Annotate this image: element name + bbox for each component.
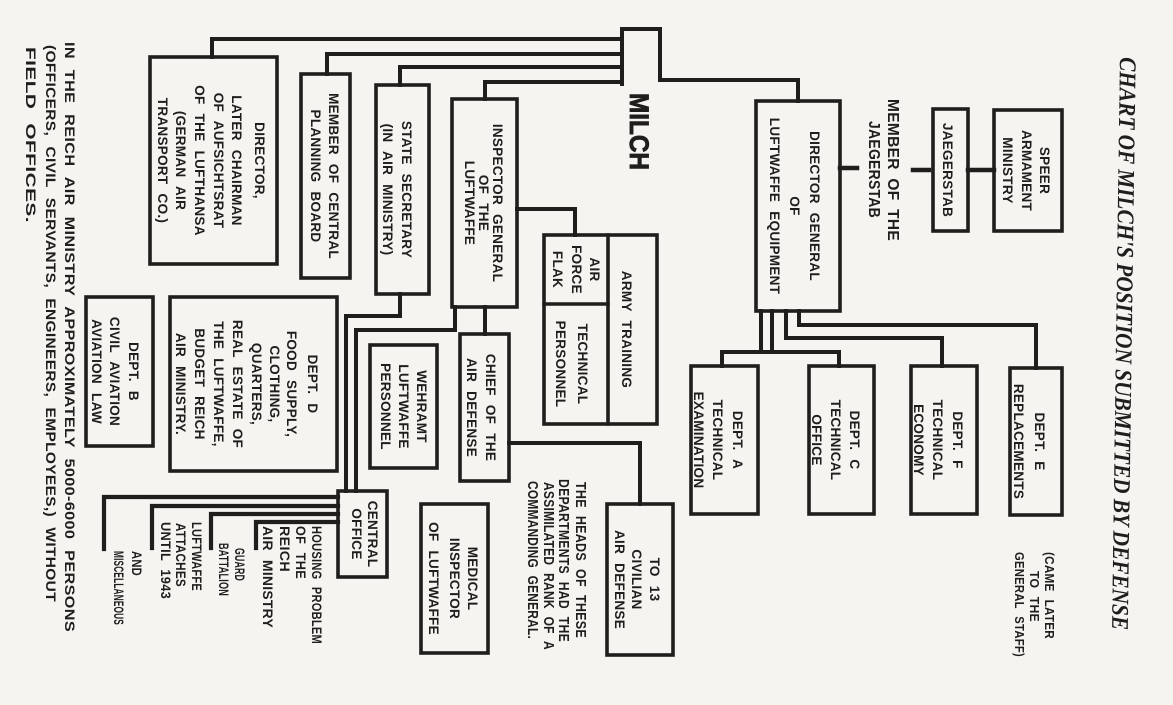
svg-text:PERSONNEL: PERSONNEL [553,321,568,408]
svg-text:MEDICAL: MEDICAL [465,547,480,611]
svg-text:MILCH: MILCH [624,93,654,170]
svg-text:INSPECTOR GENERAL: INSPECTOR GENERAL [490,124,505,282]
svg-text:PERSONNEL: PERSONNEL [378,363,393,450]
svg-text:MISCELLANEOUS: MISCELLANEOUS [111,551,126,625]
svg-text:JAEGERSTAB: JAEGERSTAB [940,123,955,217]
svg-text:DEPARTMENTS HAD THE: DEPARTMENTS HAD THE [555,479,571,642]
svg-text:OFFICE: OFFICE [349,508,364,559]
svg-text:ATTACHES: ATTACHES [173,523,188,587]
svg-text:ECONOMY: ECONOMY [911,404,926,476]
svg-text:(GERMAN AIR: (GERMAN AIR [173,111,188,210]
svg-text:ARMAMENT: ARMAMENT [1019,130,1034,212]
svg-text:OF THE: OF THE [476,175,491,231]
svg-text:INSPECTOR: INSPECTOR [447,538,462,619]
svg-text:BATTALION: BATTALION [216,543,231,596]
svg-text:CIVIL AVIATION: CIVIL AVIATION [107,317,122,426]
svg-text:DEPT. C: DEPT. C [847,411,862,470]
svg-text:(CAME LATER: (CAME LATER [1042,552,1057,639]
svg-text:CENTRAL: CENTRAL [365,501,380,568]
svg-text:OF THE: OF THE [293,526,308,579]
svg-text:GENERAL STAFF): GENERAL STAFF) [1012,552,1027,657]
svg-text:TRANSPORT CO.): TRANSPORT CO.) [155,98,170,223]
svg-text:DEPT. F: DEPT. F [950,411,965,468]
svg-text:QUARTERS,: QUARTERS, [249,343,264,425]
svg-text:OFFICE: OFFICE [809,414,824,465]
svg-text:AIR MINISTRY: AIR MINISTRY [260,526,275,628]
svg-text:REICH: REICH [277,526,292,572]
svg-text:STATE SECRETARY: STATE SECRETARY [399,121,414,258]
svg-text:EXAMINATION: EXAMINATION [691,392,706,489]
svg-text:COMMANDING GENERAL.: COMMANDING GENERAL. [524,481,540,639]
svg-text:BUDGET REICH: BUDGET REICH [192,328,207,439]
svg-text:(OFFICERS, CIVIL SERVANTS, ENG: (OFFICERS, CIVIL SERVANTS, ENGINEERS, EM… [43,45,58,603]
svg-text:REAL ESTATE OF: REAL ESTATE OF [230,320,245,448]
svg-text:DEPT. D: DEPT. D [305,355,320,414]
svg-text:PLANNING BOARD: PLANNING BOARD [308,110,323,243]
svg-text:AIR DEFENSE: AIR DEFENSE [464,358,479,457]
svg-text:DIRECTOR GENERAL: DIRECTOR GENERAL [807,131,822,281]
svg-text:FLAK: FLAK [550,251,565,288]
svg-text:ASSIMILATED RANK OF A: ASSIMILATED RANK OF A [540,482,556,650]
svg-text:LUFTWAFFE EQUIPMENT: LUFTWAFFE EQUIPMENT [767,118,782,295]
svg-text:WEHRAMT: WEHRAMT [414,370,429,443]
svg-text:LUFTWAFFE: LUFTWAFFE [189,522,204,591]
svg-text:FOOD SUPPLY,: FOOD SUPPLY, [284,331,299,437]
svg-text:SPEER: SPEER [1037,147,1052,194]
svg-text:LUFTWAFFE: LUFTWAFFE [396,364,411,448]
svg-text:TECHNICAL: TECHNICAL [575,324,590,405]
svg-text:TECHNICAL: TECHNICAL [828,400,843,481]
svg-text:TO 13: TO 13 [647,558,662,602]
svg-text:AIR: AIR [587,257,602,281]
svg-text:THE HEADS OF THESE: THE HEADS OF THESE [572,482,588,638]
svg-text:HOUSING PROBLEM: HOUSING PROBLEM [309,526,324,644]
svg-text:IN THE REICH AIR MINISTRY APPR: IN THE REICH AIR MINISTRY APPROXIMATELY … [62,42,77,632]
svg-text:CHIEF OF THE: CHIEF OF THE [483,354,498,461]
svg-text:TO THE: TO THE [1027,571,1042,622]
svg-text:(IN AIR MINISTRY): (IN AIR MINISTRY) [380,124,395,256]
svg-text:TECHNICAL: TECHNICAL [710,400,725,481]
svg-text:UNTIL 1943: UNTIL 1943 [158,522,173,599]
svg-text:AVIATION LAW: AVIATION LAW [89,319,104,424]
svg-text:DEPT. B: DEPT. B [126,342,141,401]
svg-text:CLOTHING,: CLOTHING, [267,346,282,423]
svg-text:OF LUFTWAFFE: OF LUFTWAFFE [426,522,441,635]
svg-text:DEPT. A: DEPT. A [730,411,745,469]
svg-text:OF THE LUFTHANSA: OF THE LUFTHANSA [192,85,207,236]
svg-text:FORCE: FORCE [569,245,584,294]
svg-text:OF AUFSICHTSRAT: OF AUFSICHTSRAT [211,93,226,229]
svg-text:AIR DEFENSE: AIR DEFENSE [612,530,627,629]
svg-text:REPLACEMENTS: REPLACEMENTS [1011,384,1026,499]
svg-text:MEMBER OF CENTRAL: MEMBER OF CENTRAL [326,93,341,259]
svg-text:ARMY TRAINING: ARMY TRAINING [619,271,634,388]
svg-text:OF: OF [787,196,802,215]
svg-text:DIRECTOR,: DIRECTOR, [252,122,267,199]
svg-text:THE LUFTWAFFE,: THE LUFTWAFFE, [211,321,226,446]
svg-text:TECHNICAL: TECHNICAL [930,400,945,481]
svg-text:CIVILIAN: CIVILIAN [629,549,644,609]
svg-text:AND: AND [129,551,144,576]
svg-text:MEMBER OF THE: MEMBER OF THE [884,99,901,241]
svg-text:FIELD OFFICES.: FIELD OFFICES. [23,47,38,223]
svg-text:MINISTRY: MINISTRY [1000,137,1015,203]
svg-text:GUARD: GUARD [232,548,247,581]
svg-text:LATER CHAIRMAN: LATER CHAIRMAN [229,95,244,225]
svg-text:AIR MINISTRY.: AIR MINISTRY. [173,333,188,435]
svg-text:JAEGERSTAB: JAEGERSTAB [865,121,882,218]
svg-text:DEPT. E: DEPT. E [1032,412,1047,470]
svg-text:LUFTWAFFE: LUFTWAFFE [462,161,477,245]
